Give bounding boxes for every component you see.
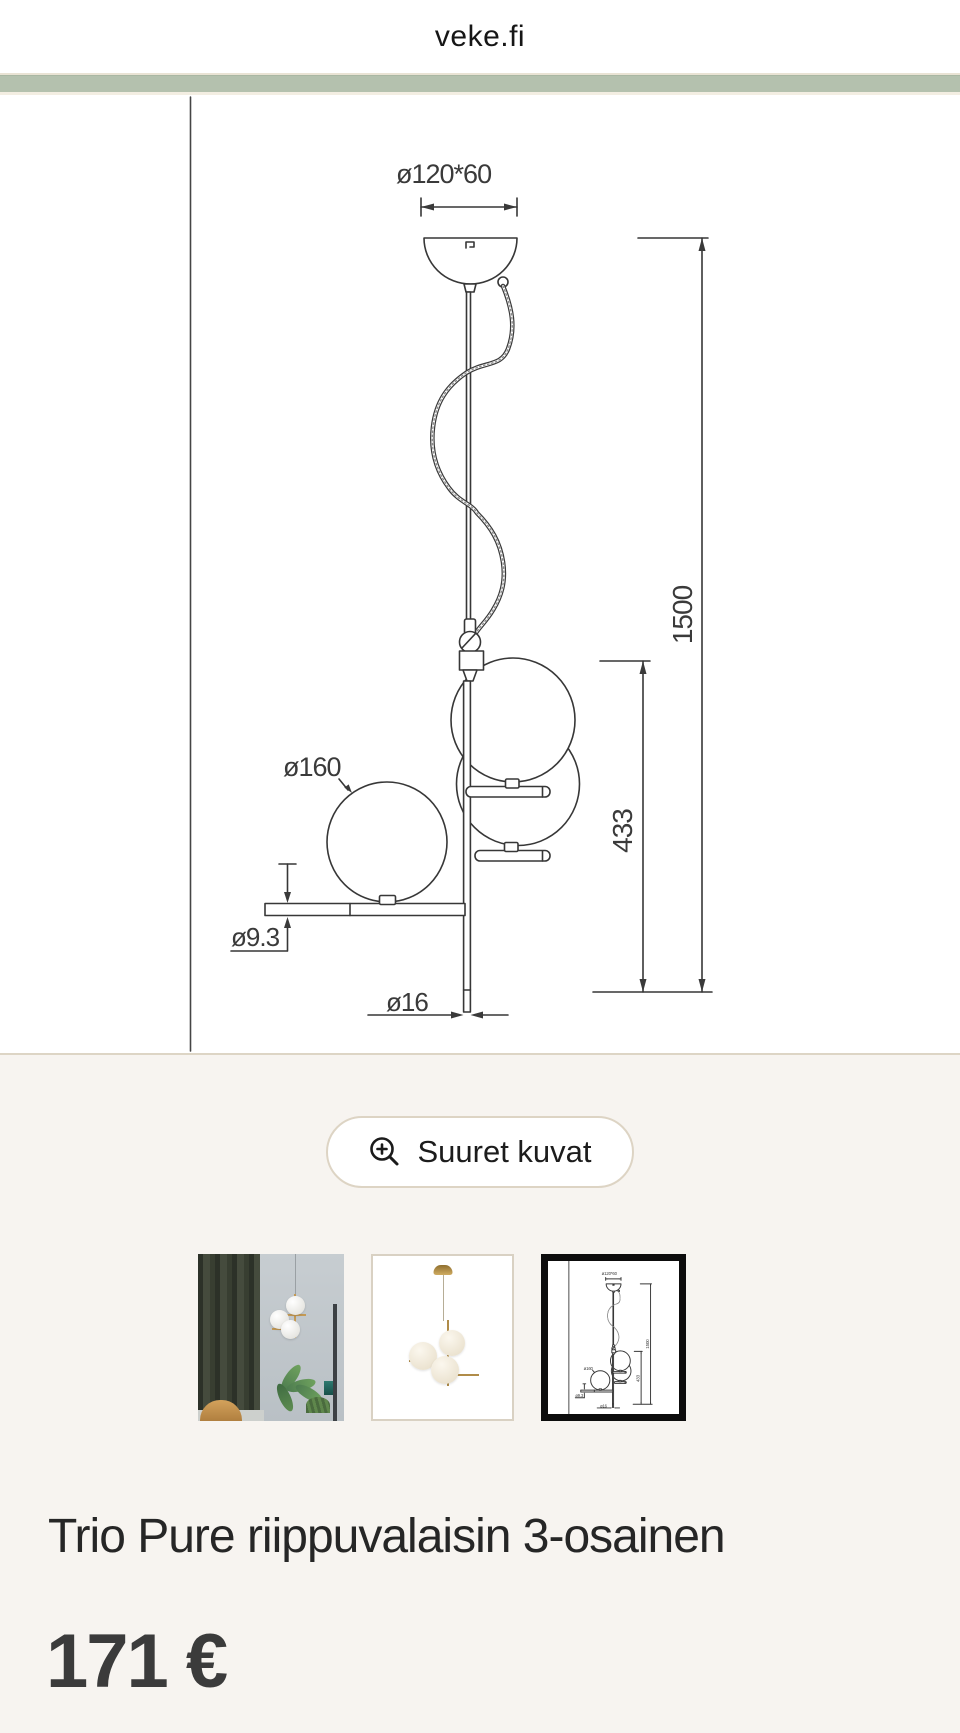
frame-edge <box>333 1304 337 1421</box>
image-panel-divider <box>0 1053 960 1055</box>
lamp-globe <box>439 1330 465 1356</box>
technical-drawing-mini <box>548 1261 679 1414</box>
zoom-in-icon <box>368 1135 402 1169</box>
product-price: 171 € <box>46 1618 960 1705</box>
lamp-globe <box>281 1320 300 1339</box>
teal-object <box>324 1381 333 1395</box>
lamp-cable <box>443 1275 444 1321</box>
lamp-canopy <box>433 1265 452 1275</box>
lamp-globe <box>431 1356 459 1384</box>
large-images-button[interactable]: Suuret kuvat <box>326 1116 633 1188</box>
technical-drawing[interactable] <box>0 95 960 1053</box>
site-logo[interactable]: veke.fi <box>435 20 525 54</box>
thumbnail-technical-drawing[interactable] <box>541 1254 686 1421</box>
site-header: veke.fi <box>0 0 960 73</box>
large-images-button-label: Suuret kuvat <box>417 1134 591 1170</box>
main-product-image[interactable] <box>0 95 960 1053</box>
accent-bar <box>0 75 960 92</box>
lamp-globe <box>286 1296 305 1315</box>
thumbnail-lifestyle-photo[interactable] <box>198 1254 344 1421</box>
succulent <box>306 1397 330 1413</box>
lamp-cable <box>295 1254 296 1296</box>
thumbnail-row <box>0 1254 922 1421</box>
product-title: Trio Pure riippuvalaisin 3-osainen <box>48 1509 960 1564</box>
thumbnail-product-photo[interactable] <box>371 1254 514 1421</box>
curtain <box>198 1254 260 1421</box>
